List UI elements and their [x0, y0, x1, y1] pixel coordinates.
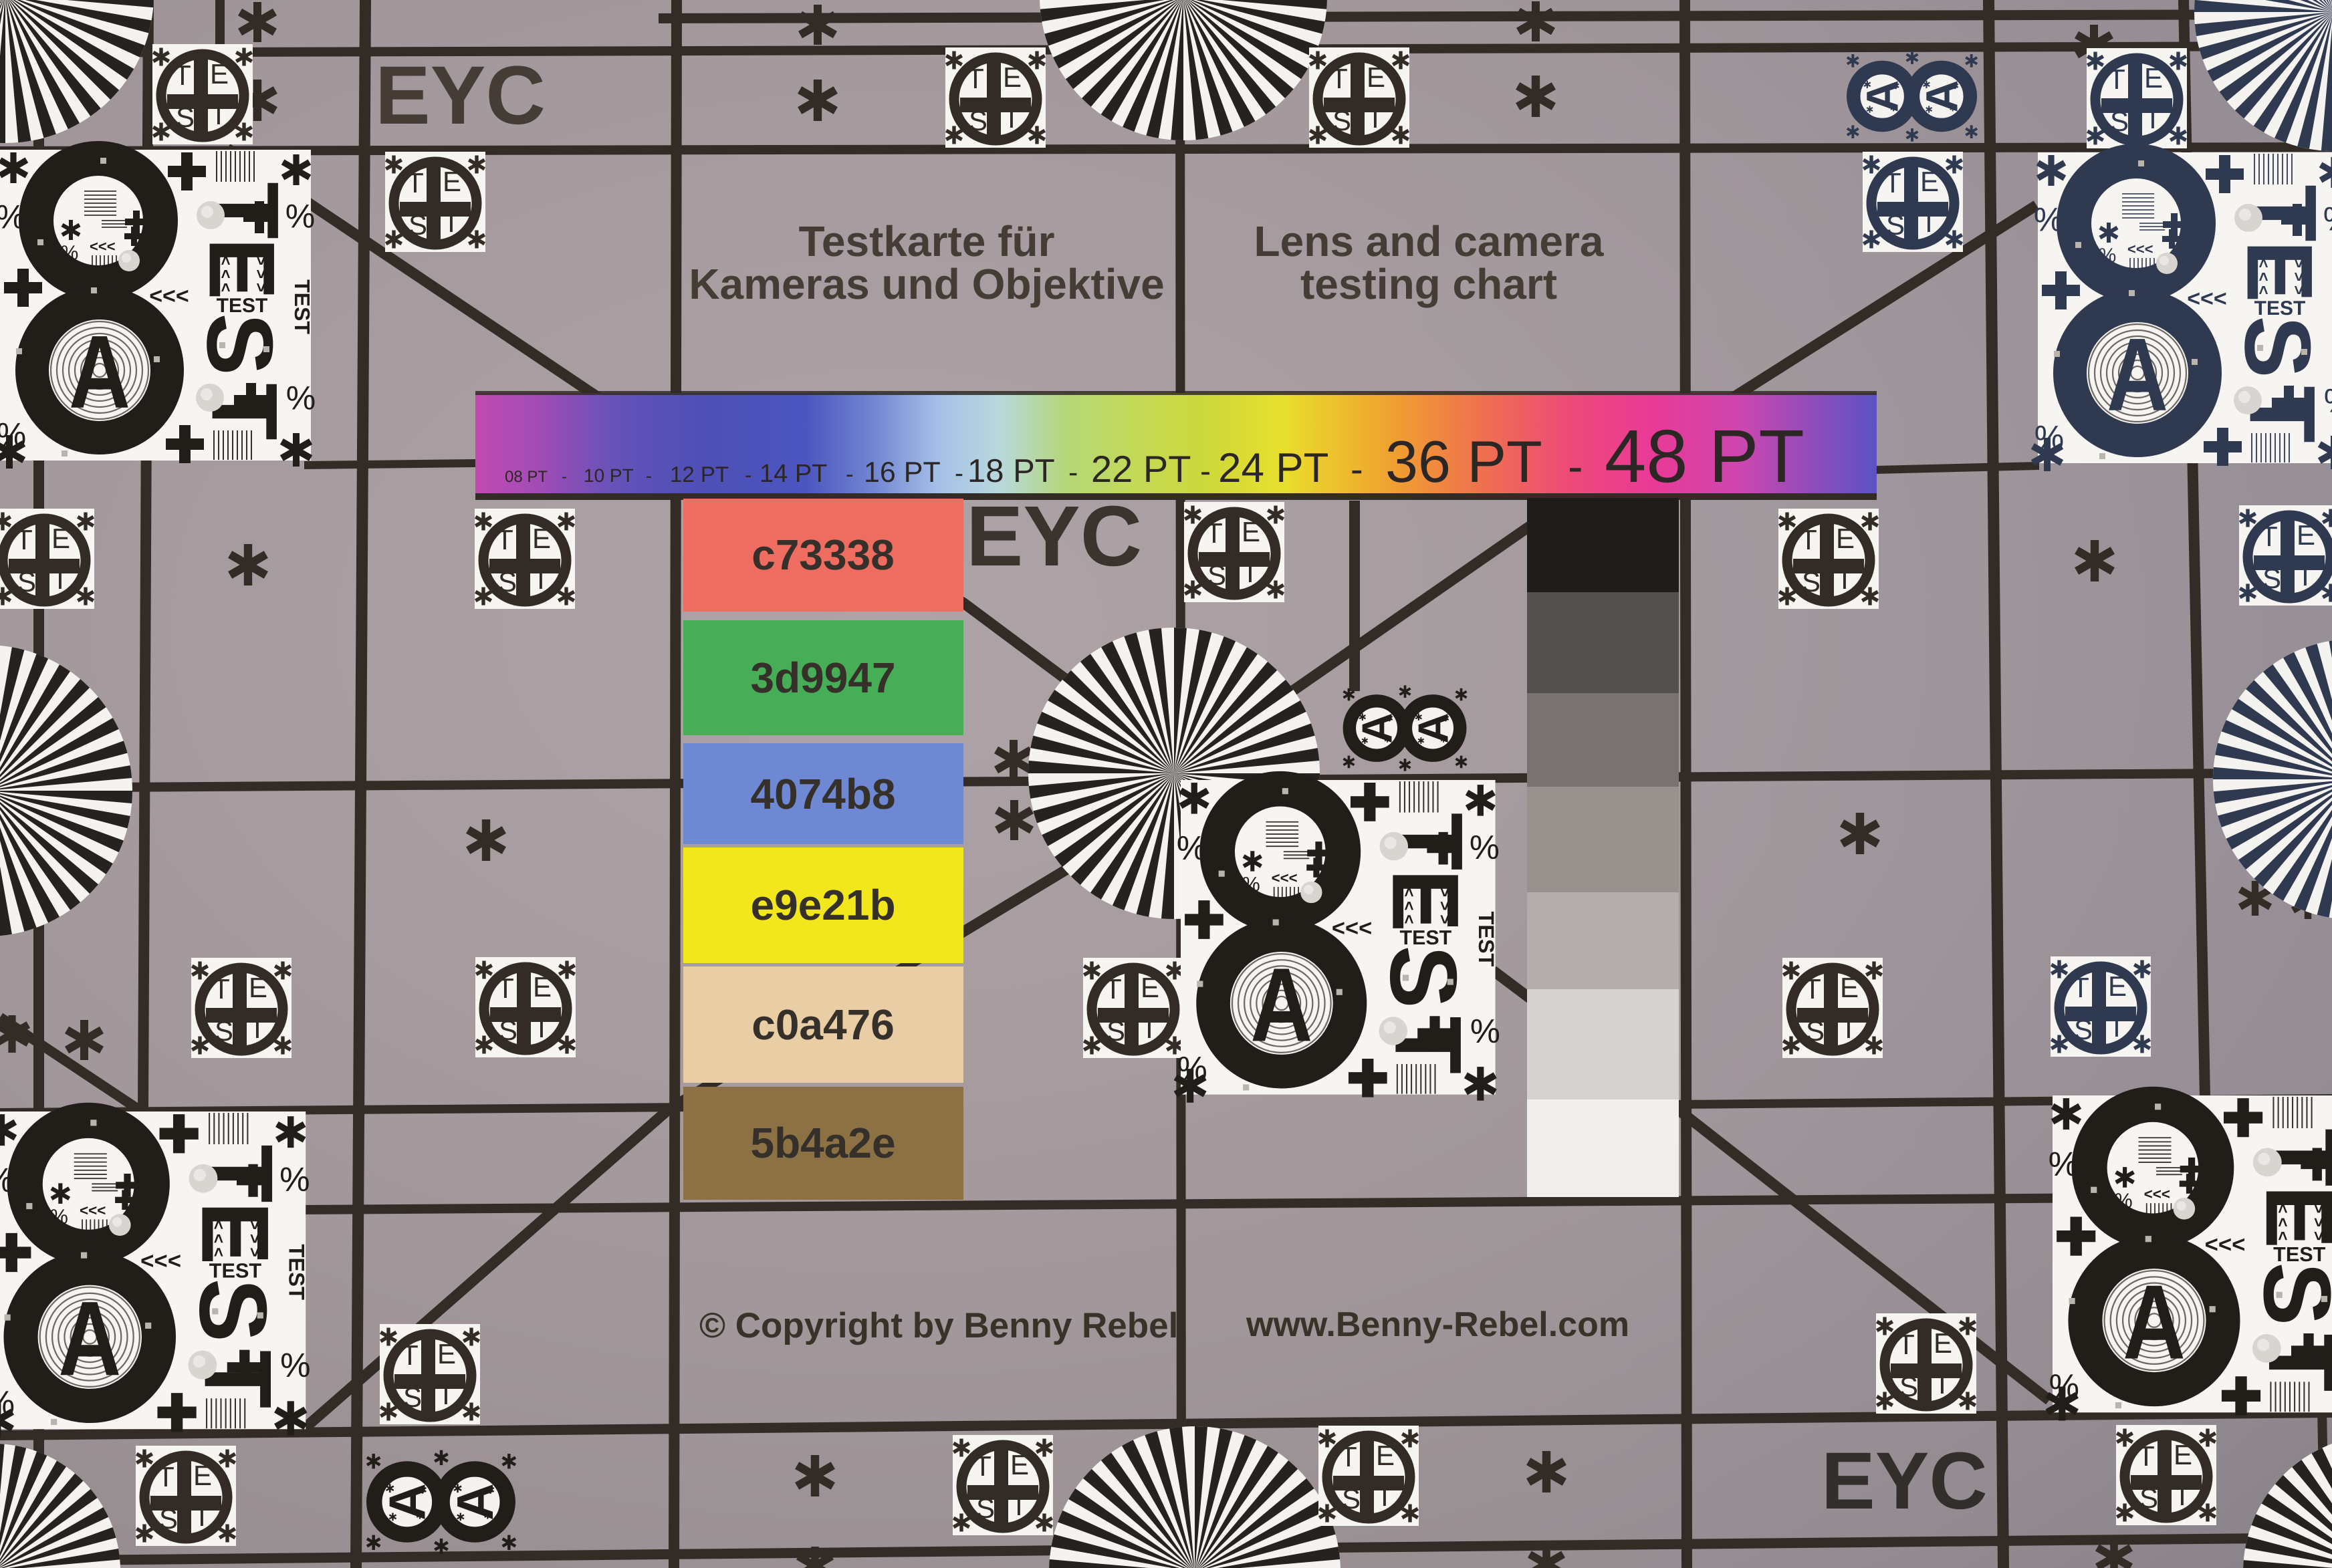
svg-text:36 PT: 36 PT	[1385, 428, 1542, 495]
svg-text:12 PT: 12 PT	[670, 462, 729, 487]
svg-text:4074b8: 4074b8	[750, 770, 895, 818]
svg-text:EYC: EYC	[375, 49, 546, 142]
svg-text:Kameras und Objektive: Kameras und Objektive	[689, 260, 1164, 308]
svg-text:EYC: EYC	[1821, 1435, 1988, 1526]
svg-text:testing chart: testing chart	[1300, 260, 1557, 308]
svg-text:Lens and camera: Lens and camera	[1254, 217, 1604, 265]
svg-text:www.Benny-Rebel.com: www.Benny-Rebel.com	[1246, 1305, 1629, 1344]
svg-text:c0a476: c0a476	[751, 1001, 895, 1049]
svg-text:-: -	[955, 459, 963, 488]
svg-text:-: -	[1200, 454, 1211, 489]
svg-text:-: -	[745, 463, 751, 487]
svg-text:EYC: EYC	[966, 489, 1142, 584]
svg-text:08 PT: 08 PT	[505, 468, 548, 486]
svg-text:22 PT: 22 PT	[1091, 448, 1191, 490]
svg-text:14 PT: 14 PT	[760, 460, 827, 488]
svg-text:-: -	[646, 466, 652, 486]
svg-text:Testkarte für: Testkarte für	[799, 217, 1055, 265]
svg-text:24 PT: 24 PT	[1218, 445, 1328, 491]
svg-text:© Copyright by Benny Rebel: © Copyright by Benny Rebel	[699, 1306, 1178, 1345]
svg-text:-: -	[1068, 456, 1078, 489]
svg-text:18 PT: 18 PT	[967, 453, 1055, 489]
svg-text:-: -	[1351, 448, 1363, 490]
svg-text:16 PT: 16 PT	[864, 456, 941, 489]
svg-text:10 PT: 10 PT	[584, 465, 634, 486]
svg-text:e9e21b: e9e21b	[750, 881, 895, 929]
svg-text:-: -	[1568, 441, 1583, 492]
svg-text:c73338: c73338	[751, 531, 895, 579]
svg-text:-: -	[562, 468, 567, 486]
svg-text:-: -	[846, 461, 854, 487]
svg-text:5b4a2e: 5b4a2e	[750, 1119, 895, 1167]
svg-text:48 PT: 48 PT	[1605, 414, 1804, 498]
svg-text:3d9947: 3d9947	[750, 654, 895, 702]
